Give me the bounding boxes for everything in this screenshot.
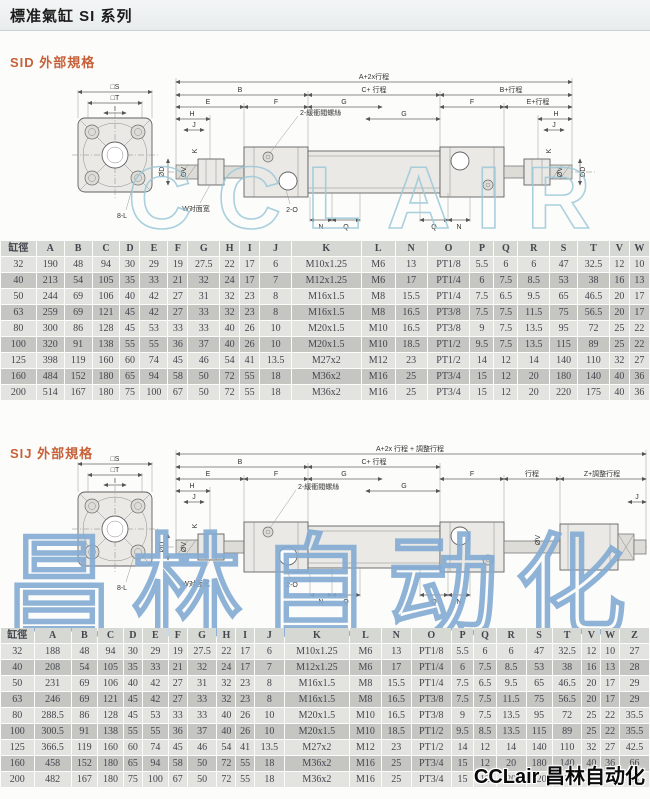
table-cell: M12 — [362, 353, 395, 368]
table-cell: 27 — [169, 676, 187, 691]
table-cell: PT1/4 — [428, 289, 470, 304]
table-cell: 7.5 — [494, 337, 517, 352]
table-cell: 45 — [124, 708, 142, 723]
dim-label-h: H — [189, 483, 194, 490]
dim-label-total: A+2x行程 — [359, 72, 389, 81]
table-cell: 25 — [610, 337, 629, 352]
table-cell: 105 — [93, 273, 120, 288]
table-cell: 19 — [168, 257, 187, 272]
column-header: E — [140, 241, 167, 256]
table-cell: 9.5 — [518, 289, 549, 304]
table-cell: 167 — [65, 385, 92, 400]
table-cell: M12x1.25 — [292, 273, 361, 288]
table-cell: 65 — [120, 369, 139, 384]
table-cell: 7 — [255, 660, 284, 675]
table-cell: 9.5 — [497, 676, 526, 691]
table-cell: 41 — [236, 740, 254, 755]
column-header: D — [124, 628, 142, 643]
table-cell: 74 — [143, 740, 168, 755]
dim-label-f: F — [274, 99, 278, 106]
table-cell: 45 — [120, 305, 139, 320]
table-cell: M8 — [362, 289, 395, 304]
table-cell: 86 — [72, 708, 97, 723]
table-cell: 50 — [1, 676, 34, 691]
table-cell: 36 — [630, 369, 649, 384]
header-row: 缸徑ABCDEFGHIJKLNOPQRSTVWZ — [1, 628, 649, 643]
column-header: B — [72, 628, 97, 643]
callout-port: 2-O — [286, 582, 298, 589]
table-cell: 72 — [220, 385, 239, 400]
table-cell: 160 — [1, 756, 34, 771]
column-header: V — [610, 241, 629, 256]
table-row: 1003209113855553637402610M20x1.5M1018.5P… — [1, 337, 649, 352]
table-cell: 94 — [93, 257, 120, 272]
table-cell: 8.5 — [474, 724, 495, 739]
table-cell: 17 — [236, 644, 254, 659]
table-cell: 33 — [143, 660, 168, 675]
table-cell: 10 — [255, 708, 284, 723]
table-cell: 36 — [169, 724, 187, 739]
table-cell: 22 — [601, 708, 619, 723]
table-cell: 138 — [93, 337, 120, 352]
table-cell: 6.5 — [474, 676, 495, 691]
table-cell: 19 — [169, 644, 187, 659]
table-cell: 54 — [217, 740, 235, 755]
air-port — [451, 527, 469, 545]
table-cell: M27x2 — [285, 740, 349, 755]
dim-label-n: N — [318, 599, 323, 606]
column-header: C — [98, 628, 123, 643]
table-cell: M8 — [350, 676, 381, 691]
table-cell: 72 — [578, 321, 609, 336]
table-cell: 55 — [240, 385, 259, 400]
table-cell: 86 — [65, 321, 92, 336]
dim-label-holes: 8-L — [117, 585, 127, 592]
dim-label-b: B — [238, 459, 243, 466]
table-cell: 42 — [143, 692, 168, 707]
table-cell: 29 — [143, 644, 168, 659]
table-cell: 8 — [255, 676, 284, 691]
table-cell: 100 — [1, 724, 34, 739]
dim-label-q: Q — [343, 599, 349, 606]
table-cell: M10x1.25 — [285, 644, 349, 659]
table-cell: 29 — [140, 257, 167, 272]
dim-label-n2: N — [456, 599, 461, 606]
table-cell: 11.5 — [518, 305, 549, 320]
table-row: 80288.58612845533333402610M20x1.5M1016.5… — [1, 708, 649, 723]
table-cell: 28 — [620, 660, 649, 675]
table-cell: PT3/8 — [412, 692, 451, 707]
dim-label-e: E — [206, 99, 211, 106]
table-cell: 38 — [553, 660, 582, 675]
table-row: 803008612845533333402610M20x1.5M1016.5PT… — [1, 321, 649, 336]
column-header: R — [497, 628, 526, 643]
table-cell: M6 — [362, 273, 395, 288]
table-cell: 50 — [188, 772, 217, 787]
table-cell: 25 — [382, 772, 411, 787]
table-row: 32190489430291927.522176M10x1.25M613PT1/… — [1, 257, 649, 272]
table-cell: 33 — [188, 305, 219, 320]
table-cell: 180 — [98, 756, 123, 771]
column-header: O — [412, 628, 451, 643]
table-cell: 208 — [35, 660, 71, 675]
table-row: 40208541053533213224177M12x1.25M617PT1/4… — [1, 660, 649, 675]
column-header: W — [601, 628, 619, 643]
table-cell: 12 — [494, 385, 517, 400]
dim-label-q2: Q — [431, 599, 437, 606]
column-header: P — [470, 241, 493, 256]
table-cell: 32 — [610, 353, 629, 368]
table-cell: 53 — [550, 273, 577, 288]
table-cell: 6.5 — [494, 289, 517, 304]
table-cell: 17 — [240, 273, 259, 288]
table-cell: 180 — [98, 772, 123, 787]
table-cell: M16x1.5 — [285, 692, 349, 707]
table-cell: 47 — [527, 644, 552, 659]
table-cell: 175 — [578, 385, 609, 400]
table-cell: M10 — [362, 321, 395, 336]
table-cell: 100 — [140, 385, 167, 400]
table-cell: 30 — [120, 257, 139, 272]
table-cell: 32.5 — [578, 257, 609, 272]
table-cell: 213 — [37, 273, 64, 288]
table-cell: 14 — [518, 353, 549, 368]
table-cell: 6 — [518, 257, 549, 272]
table-cell: 17 — [601, 692, 619, 707]
table-cell: 482 — [35, 772, 71, 787]
table-cell: M16x1.5 — [285, 676, 349, 691]
table-cell: M20x1.5 — [285, 708, 349, 723]
column-header: K — [292, 241, 361, 256]
dim-label-g2: G — [401, 483, 406, 490]
table-cell: 35.5 — [620, 708, 649, 723]
table-cell: 13.5 — [260, 353, 291, 368]
table-cell: 16.5 — [396, 305, 427, 320]
table-cell: 7.5 — [470, 289, 493, 304]
table-cell: 48 — [65, 257, 92, 272]
table-cell: 46.5 — [553, 676, 582, 691]
table-cell: 12 — [474, 740, 495, 755]
table-cell: 16.5 — [396, 321, 427, 336]
table-cell: 37 — [188, 724, 217, 739]
column-header: K — [285, 628, 349, 643]
table-cell: 160 — [98, 740, 123, 755]
table-cell: 8 — [255, 692, 284, 707]
table-cell: 25 — [582, 724, 600, 739]
table-cell: 40 — [610, 385, 629, 400]
dim-label-c-stroke: C+ 行程 — [361, 85, 386, 94]
column-header: N — [382, 628, 411, 643]
table-cell: PT1/8 — [412, 644, 451, 659]
column-header: C — [93, 241, 120, 256]
table-cell: 7.5 — [494, 321, 517, 336]
column-header: H — [220, 241, 239, 256]
table-cell: PT3/8 — [412, 708, 451, 723]
table-cell: 20 — [518, 385, 549, 400]
table-cell: 55 — [240, 369, 259, 384]
table-cell: 26 — [236, 708, 254, 723]
table-cell: 13 — [601, 660, 619, 675]
table-cell: 13.5 — [518, 337, 549, 352]
table-cell: 31 — [188, 676, 217, 691]
dim-label-b-stroke: B+行程 — [500, 85, 523, 94]
table-cell: 23 — [240, 289, 259, 304]
table-cell: 32 — [1, 644, 34, 659]
table-cell: 10 — [260, 337, 291, 352]
table-cell: 18.5 — [396, 337, 427, 352]
dim-label-stroke: 行程 — [525, 469, 539, 478]
table-cell: 54 — [220, 353, 239, 368]
dim-label-f2: F — [470, 471, 474, 478]
dim-label-g: G — [341, 99, 346, 106]
column-header: W — [630, 241, 649, 256]
dim-label-g: G — [341, 471, 346, 478]
table-cell: M16 — [362, 369, 395, 384]
table-cell: 128 — [98, 708, 123, 723]
table-cell: 300.5 — [35, 724, 71, 739]
table-cell: M16 — [350, 772, 381, 787]
table-cell: PT1/4 — [412, 676, 451, 691]
table-cell: 5.5 — [452, 644, 473, 659]
table-cell: 58 — [168, 369, 187, 384]
table-cell: 14 — [497, 740, 526, 755]
table-cell: 50 — [188, 369, 219, 384]
table-cell: 40 — [124, 676, 142, 691]
table-cell: 40 — [217, 708, 235, 723]
table-cell: 33 — [140, 273, 167, 288]
table-cell: 16 — [610, 273, 629, 288]
sij-front-view: □S □T I 8-L — [72, 456, 158, 592]
table-cell: 22 — [601, 724, 619, 739]
table-row: 12539811916060744546544113.5M27x2M1223PT… — [1, 353, 649, 368]
dim-label-total: A+2x 行程 + 調整行程 — [376, 444, 444, 453]
table-cell: 32 — [217, 692, 235, 707]
column-header: H — [217, 628, 235, 643]
table-cell: 23 — [236, 692, 254, 707]
column-header: T — [578, 241, 609, 256]
table-cell: 6 — [497, 644, 526, 659]
table-cell: 7.5 — [474, 660, 495, 675]
column-header: O — [428, 241, 470, 256]
table-cell: 58 — [169, 756, 187, 771]
table-cell: 18 — [255, 756, 284, 771]
table-cell: 110 — [553, 740, 582, 755]
table-cell: 17 — [601, 676, 619, 691]
table-cell: 40 — [610, 369, 629, 384]
table-cell: 42 — [143, 676, 168, 691]
dim-label-k: K — [192, 523, 199, 528]
dim-label-ov: ØV — [181, 542, 188, 552]
column-header: V — [582, 628, 600, 643]
table-cell: 140 — [550, 353, 577, 368]
column-header: B — [65, 241, 92, 256]
table-cell: 55 — [140, 337, 167, 352]
table-cell: 46 — [188, 353, 219, 368]
table-cell: PT3/4 — [428, 385, 470, 400]
callout-cushion-screw: 2-緩衝閥螺絲 — [300, 108, 341, 117]
table-cell: 94 — [143, 756, 168, 771]
table-cell: 20 — [610, 289, 629, 304]
table-cell: PT1/2 — [428, 353, 470, 368]
table-cell: 40 — [220, 321, 239, 336]
table-cell: 89 — [578, 337, 609, 352]
table-cell: 100 — [1, 337, 36, 352]
table-cell: 17 — [630, 305, 649, 320]
table-cell: 74 — [140, 353, 167, 368]
table-cell: 160 — [1, 369, 36, 384]
table-cell: 125 — [1, 353, 36, 368]
dim-label-c-stroke: C+ 行程 — [361, 457, 386, 466]
table-cell: 94 — [140, 369, 167, 384]
page-header: 標准氣缸 SI 系列 — [0, 0, 650, 31]
table-cell: 33 — [188, 692, 217, 707]
table-cell: 95 — [527, 708, 552, 723]
table-cell: 9 — [470, 321, 493, 336]
table-cell: PT1/4 — [412, 660, 451, 675]
table-cell: 5.5 — [470, 257, 493, 272]
table-cell: 160 — [93, 353, 120, 368]
table-cell: 152 — [72, 756, 97, 771]
table-cell: 31 — [188, 289, 219, 304]
column-header: I — [236, 628, 254, 643]
page-title: 標准氣缸 SI 系列 — [10, 5, 133, 26]
column-header: S — [527, 628, 552, 643]
table-cell: 13 — [396, 257, 427, 272]
table-cell: 13.5 — [497, 724, 526, 739]
dim-label-holes: 8-L — [117, 213, 127, 220]
callout-cushion-screw: 2-緩衝閥螺絲 — [298, 482, 339, 491]
table-cell: 42 — [140, 289, 167, 304]
table-cell: 54 — [65, 273, 92, 288]
table-cell: 27.5 — [188, 644, 217, 659]
table-cell: M6 — [350, 644, 381, 659]
table-cell: 80 — [1, 708, 34, 723]
table-cell: 100 — [143, 772, 168, 787]
column-header: Q — [494, 241, 517, 256]
table-cell: 21 — [169, 660, 187, 675]
table-cell: 21 — [168, 273, 187, 288]
table-cell: 69 — [65, 289, 92, 304]
table-cell: 8.5 — [518, 273, 549, 288]
table-cell: 55 — [236, 756, 254, 771]
table-cell: 40 — [217, 724, 235, 739]
table-cell: 27 — [601, 740, 619, 755]
table-cell: 75 — [550, 305, 577, 320]
table-cell: 15 — [470, 385, 493, 400]
table-cell: 32 — [1, 257, 36, 272]
column-header: G — [188, 241, 219, 256]
column-header: J — [260, 241, 291, 256]
table-cell: 140 — [527, 740, 552, 755]
table-cell: M8 — [362, 305, 395, 320]
table-cell: 125 — [1, 740, 34, 755]
table-cell: PT3/4 — [428, 369, 470, 384]
table-cell: 46 — [188, 740, 217, 755]
table-cell: 190 — [37, 257, 64, 272]
column-header: S — [550, 241, 577, 256]
table-cell: 42 — [140, 305, 167, 320]
table-cell: 69 — [65, 305, 92, 320]
sid-spec-table: 缸徑ABCDEFGHIJKLNOPQRSTVW32190489430291927… — [0, 240, 650, 401]
table-row: 40213541053533213224177M12x1.25M617PT1/4… — [1, 273, 649, 288]
table-cell: 25 — [382, 756, 411, 771]
dim-label-od: ØD — [159, 542, 166, 553]
table-cell: 320 — [37, 337, 64, 352]
table-cell: 14 — [470, 353, 493, 368]
dim-label-j: J — [192, 122, 196, 129]
table-cell: 7.5 — [494, 305, 517, 320]
column-header: L — [350, 628, 381, 643]
table-cell: 6 — [470, 273, 493, 288]
table-cell: 10 — [630, 257, 649, 272]
column-header: A — [35, 628, 71, 643]
column-header: F — [169, 628, 187, 643]
table-cell: 54 — [72, 660, 97, 675]
column-header: N — [396, 241, 427, 256]
table-cell: 91 — [65, 337, 92, 352]
table-row: 63246691214542273332238M16x1.5M816.5PT3/… — [1, 692, 649, 707]
table-cell: 20 — [610, 305, 629, 320]
table-cell: 32 — [188, 660, 217, 675]
table-cell: 20 — [582, 692, 600, 707]
dim-label-h: H — [189, 111, 194, 118]
column-header: P — [452, 628, 473, 643]
table-cell: 55 — [236, 772, 254, 787]
dim-label-j: J — [192, 494, 196, 501]
table-cell: 25 — [610, 321, 629, 336]
table-cell: 115 — [550, 337, 577, 352]
table-cell: 23 — [236, 676, 254, 691]
table-cell: 105 — [98, 660, 123, 675]
table-cell: 6 — [260, 257, 291, 272]
table-cell: 140 — [578, 369, 609, 384]
sij-dimension-drawing: □S □T I 8-L — [0, 440, 650, 630]
table-row: 50244691064042273132238M16x1.5M815.5PT1/… — [1, 289, 649, 304]
dim-label-square-t: □T — [111, 95, 120, 102]
table-cell: 27 — [168, 305, 187, 320]
table-cell: 288.5 — [35, 708, 71, 723]
table-cell: 514 — [37, 385, 64, 400]
dim-label-j2: J — [552, 122, 556, 129]
sij-side-view: A+2x 行程 + 調整行程 B C+ 行程 E F G G F 行程 Z+調整… — [159, 444, 648, 606]
table-cell: 152 — [65, 369, 92, 384]
table-cell: 17 — [382, 660, 411, 675]
table-row: 100300.59113855553637402610M20x1.5M1018.… — [1, 724, 649, 739]
brand-logo: CCLair 昌林自动化 — [474, 760, 645, 789]
column-header: T — [553, 628, 582, 643]
sid-section-heading: SID 外部規格 — [10, 52, 95, 71]
table-cell: 7.5 — [474, 708, 495, 723]
table-cell: 18 — [260, 385, 291, 400]
column-header: R — [518, 241, 549, 256]
dim-label-g2: G — [401, 111, 406, 118]
dim-label-ov2: ØV — [535, 535, 542, 545]
table-cell: 27 — [169, 692, 187, 707]
table-cell: M10 — [350, 724, 381, 739]
table-cell: 16.5 — [382, 708, 411, 723]
dim-label-square-s: □S — [111, 84, 120, 91]
table-cell: 75 — [527, 692, 552, 707]
column-header: I — [240, 241, 259, 256]
table-cell: M36x2 — [285, 756, 349, 771]
table-cell: 244 — [37, 289, 64, 304]
table-cell: 48 — [72, 644, 97, 659]
table-cell: 33 — [169, 708, 187, 723]
table-cell: 26 — [240, 321, 259, 336]
table-cell: 26 — [236, 724, 254, 739]
table-cell: 33 — [168, 321, 187, 336]
column-header: Z — [620, 628, 649, 643]
